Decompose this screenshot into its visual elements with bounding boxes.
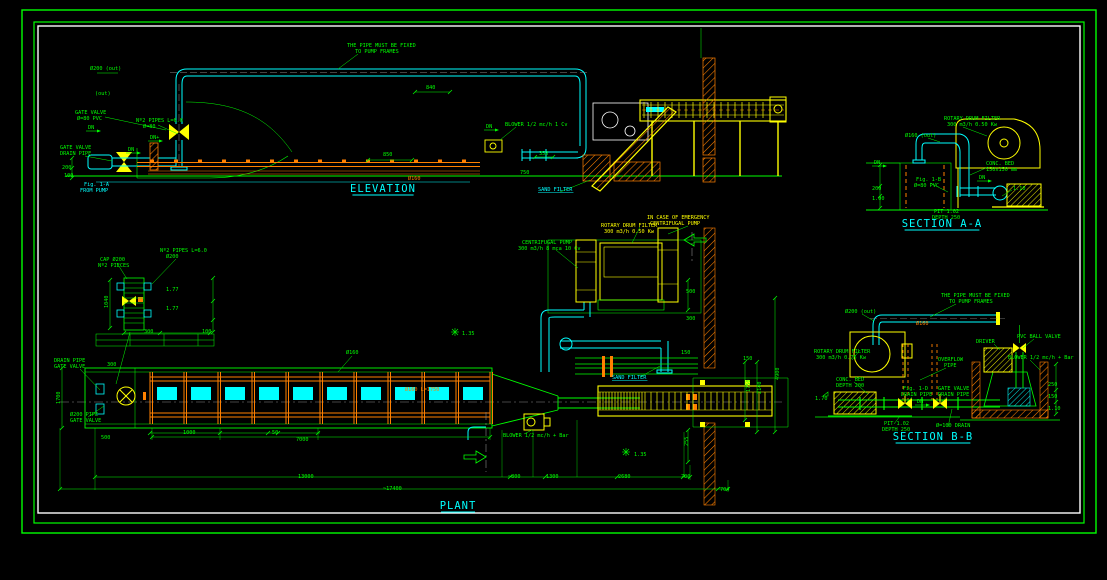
pipe-flange: [602, 356, 605, 377]
annotation-label: Ø160 (out): [905, 132, 936, 139]
annotation-label: DN: [979, 175, 985, 181]
annotation-label: 300 m3/h 0.50 Kw: [604, 229, 655, 235]
annotation-label: PVC BALL VALVE: [1017, 334, 1061, 340]
annotation-label: 840: [426, 85, 435, 91]
annotation-label: 700: [681, 474, 690, 480]
annotation-label: Ø=100 DRAIN: [936, 422, 970, 429]
annotation-label: 1.77: [166, 287, 179, 293]
level-marker: [622, 448, 630, 456]
annotation-label: 300: [686, 316, 695, 322]
annotation-label: Ø160 L=1750: [405, 386, 439, 393]
annotation-label: DRIVER: [976, 339, 996, 345]
annotation-label: 1.35: [634, 452, 647, 458]
pipe-flange: [610, 356, 613, 377]
annotation-label: 1.70: [815, 396, 828, 402]
annotation-label: 200: [872, 186, 881, 192]
annotation-label: 1.35: [462, 331, 475, 337]
annotation-label: BLOWER 1/2 mc/h 1 Cv: [505, 122, 567, 128]
annotation-label: 150: [1048, 394, 1057, 400]
annotation-label: 500: [686, 289, 695, 295]
annotation-label: 1.77: [166, 306, 179, 312]
cad-sheet: THE PIPE MUST BE FIXEDTO PUMP FRAMESØ200…: [0, 0, 1107, 580]
annotation-label: GATE VALVE: [54, 364, 85, 370]
annotation-label: 850: [383, 152, 392, 158]
annotation-label: Ø=80 PVC: [77, 115, 102, 122]
annotation-label: DEPTH 200: [836, 383, 864, 389]
annotation-label: 255: [684, 437, 690, 446]
annotation-label: ~800: [508, 474, 521, 480]
annotation-label: 2140: [757, 382, 763, 395]
annotation-label: 300: [144, 329, 153, 335]
annotation-label: 300 m3/h 0.50 Kw: [947, 122, 998, 128]
annotation-label: DN: [917, 399, 923, 405]
annotation-label: 1700: [56, 392, 62, 405]
annotation-label: 13000: [298, 474, 314, 480]
view-title: SECTION A-A: [902, 218, 983, 230]
annotation-label: 1.10: [1048, 406, 1061, 412]
annotation-label: 150: [681, 350, 690, 356]
level-marker: [451, 328, 459, 336]
annotation-label: DN: [88, 125, 94, 131]
wall-plan: [704, 423, 715, 505]
view-title: PLANT: [440, 500, 477, 512]
annotation-label: GATE VALVE: [70, 418, 101, 424]
annotation-label: Ø160: [408, 175, 421, 182]
annotation-label: Ø160: [916, 320, 929, 327]
conveyor-feed-chute: [646, 107, 664, 112]
annotation-label: Nº2 PIECES: [98, 263, 129, 269]
annotation-label: Ø200 PIPE: [70, 411, 98, 418]
annotation-label: 7000: [296, 437, 309, 443]
annotation-label: 250: [1048, 382, 1057, 388]
annotation-label: 1000: [183, 430, 196, 436]
annotation-label: ~17400: [383, 486, 402, 492]
annotation-label: CAP Ø200: [100, 256, 125, 263]
annotation-label: 750: [520, 170, 529, 176]
annotation-label: 1040: [104, 296, 110, 309]
annotation-label: TO PUMP FRAMES: [355, 49, 399, 55]
annotation-label: DN: [874, 160, 880, 166]
annotation-label: 300: [107, 362, 116, 368]
annotation-label: FROM PUMP: [80, 188, 108, 194]
annotation-label: 200: [62, 165, 71, 171]
annotation-label: 1.10: [1013, 186, 1026, 192]
annotation-label: SAND FILTER: [538, 187, 573, 193]
annotation-label: 300 m3/h 0.75 Kw: [816, 355, 867, 361]
annotation-label: BLOWER 1/2 mc/h + Bar: [1008, 355, 1074, 361]
annotation-label: Ø200: [166, 253, 179, 260]
annotation-label: Ø=80 PVC: [914, 182, 939, 189]
annotation-label: 150: [743, 356, 752, 362]
annotation-label: DRAIN PIPE: [901, 392, 932, 398]
view-title: SECTION B-B: [893, 431, 974, 443]
annotation-label: BLOWER 1/2 mc/h + Bar: [503, 433, 569, 439]
drawing-canvas[interactable]: THE PIPE MUST BE FIXEDTO PUMP FRAMESØ200…: [0, 0, 1107, 580]
annotation-label: DRAIN PIPE: [60, 151, 91, 157]
annotation-label: 500: [101, 435, 110, 441]
annotation-label: TO PUMP FRAMES: [949, 299, 993, 305]
annotation-label: Ø160: [346, 349, 359, 356]
annotation-label: PIPE: [944, 363, 957, 369]
annotation-label: 100: [202, 329, 211, 335]
annotation-label: Ø=80: [143, 123, 156, 130]
annotation-label: 300 m3/h 8 mca 10 Cv: [518, 246, 580, 252]
annotation-label: DN: [486, 124, 492, 130]
annotation-label: 350: [539, 151, 548, 157]
wall-elevation: [703, 58, 715, 155]
annotation-label: 1750: [746, 380, 752, 393]
annotation-label: DN: [128, 147, 134, 153]
annotation-label: DN+: [150, 135, 159, 141]
annotation-label: SAND FILTER: [612, 375, 647, 381]
annotation-label: DRAIN PIPE: [938, 392, 969, 398]
annotation-label: 4900: [775, 368, 781, 381]
annotation-label: 2680: [618, 474, 631, 480]
filter-drive-motor: [834, 392, 876, 414]
annotation-label: Ø200 (out): [845, 308, 876, 315]
annotation-label: 1300: [546, 474, 559, 480]
annotation-label: CENTRIFUGAL PUMP: [650, 221, 700, 227]
annotation-label: 150x150 mm: [986, 167, 1017, 173]
view-title: ELEVATION: [350, 183, 416, 195]
annotation-label: 704: [720, 487, 729, 493]
annotation-label: 1.00: [872, 196, 885, 202]
annotation-label: (out): [95, 91, 111, 97]
annotation-label: 100: [64, 173, 73, 179]
annotation-label: 50: [272, 430, 278, 436]
wall-plan: [704, 228, 715, 368]
annotation-label: Ø200 (out): [90, 65, 121, 72]
wall-footing: [703, 158, 715, 182]
